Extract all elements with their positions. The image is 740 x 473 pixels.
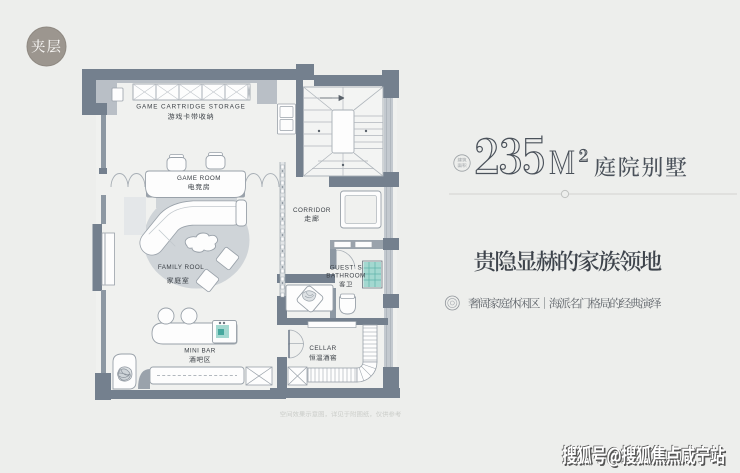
svg-text:GAME CARTRIDGE STORAGE: GAME CARTRIDGE STORAGE <box>136 104 246 111</box>
svg-text:FAMILY ROOL: FAMILY ROOL <box>158 264 204 271</box>
svg-text:BATHROOM: BATHROOM <box>326 273 366 280</box>
svg-text:CELLAR: CELLAR <box>309 345 336 352</box>
svg-text:GUEST' S: GUEST' S <box>330 265 362 272</box>
svg-text:CORRIDOR: CORRIDOR <box>293 207 331 214</box>
svg-text:GAME ROOM: GAME ROOM <box>177 175 221 182</box>
svg-text:MINI BAR: MINI BAR <box>184 348 216 355</box>
